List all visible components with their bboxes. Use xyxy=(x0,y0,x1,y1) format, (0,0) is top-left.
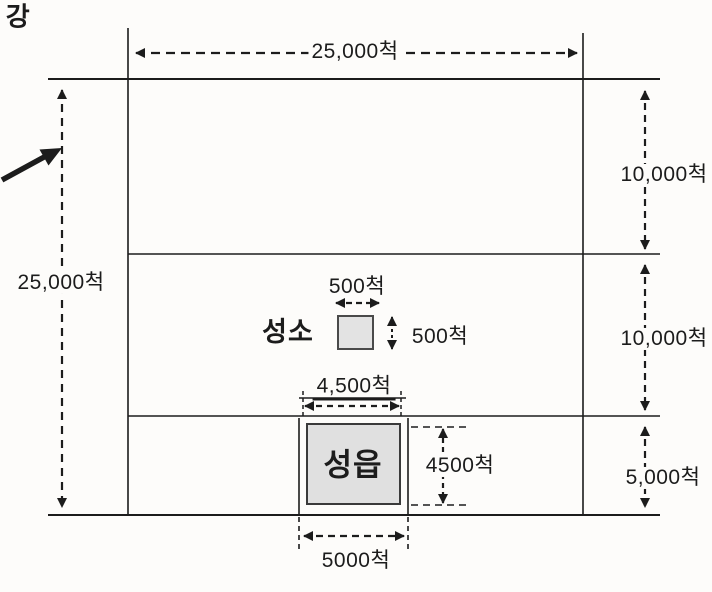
left-height-label: 25,000척 xyxy=(14,272,107,294)
sanctuary-square xyxy=(338,316,373,349)
sanctuary-height-label: 500척 xyxy=(412,326,468,348)
city-height-label: 4500척 xyxy=(423,455,498,477)
river-arrow-icon xyxy=(2,148,62,180)
band3-height-label: 5,000척 xyxy=(623,467,704,489)
river-label: 강 xyxy=(6,3,30,30)
sanctuary-width-label: 500척 xyxy=(329,276,385,298)
city-name-label: 성읍 xyxy=(323,450,382,483)
top-width-label: 25,000척 xyxy=(308,41,401,63)
sanctuary-name-label: 성소 xyxy=(262,318,314,346)
land-allotment-diagram: 강 25,000척 25,000척 10,000척 10,000척 5,000척… xyxy=(0,0,712,592)
band1-height-label: 10,000척 xyxy=(617,164,710,186)
band2-height-label: 10,000척 xyxy=(617,328,710,350)
city-block-width-label: 5000척 xyxy=(322,550,391,572)
city-width-label: 4,500척 xyxy=(313,375,396,400)
